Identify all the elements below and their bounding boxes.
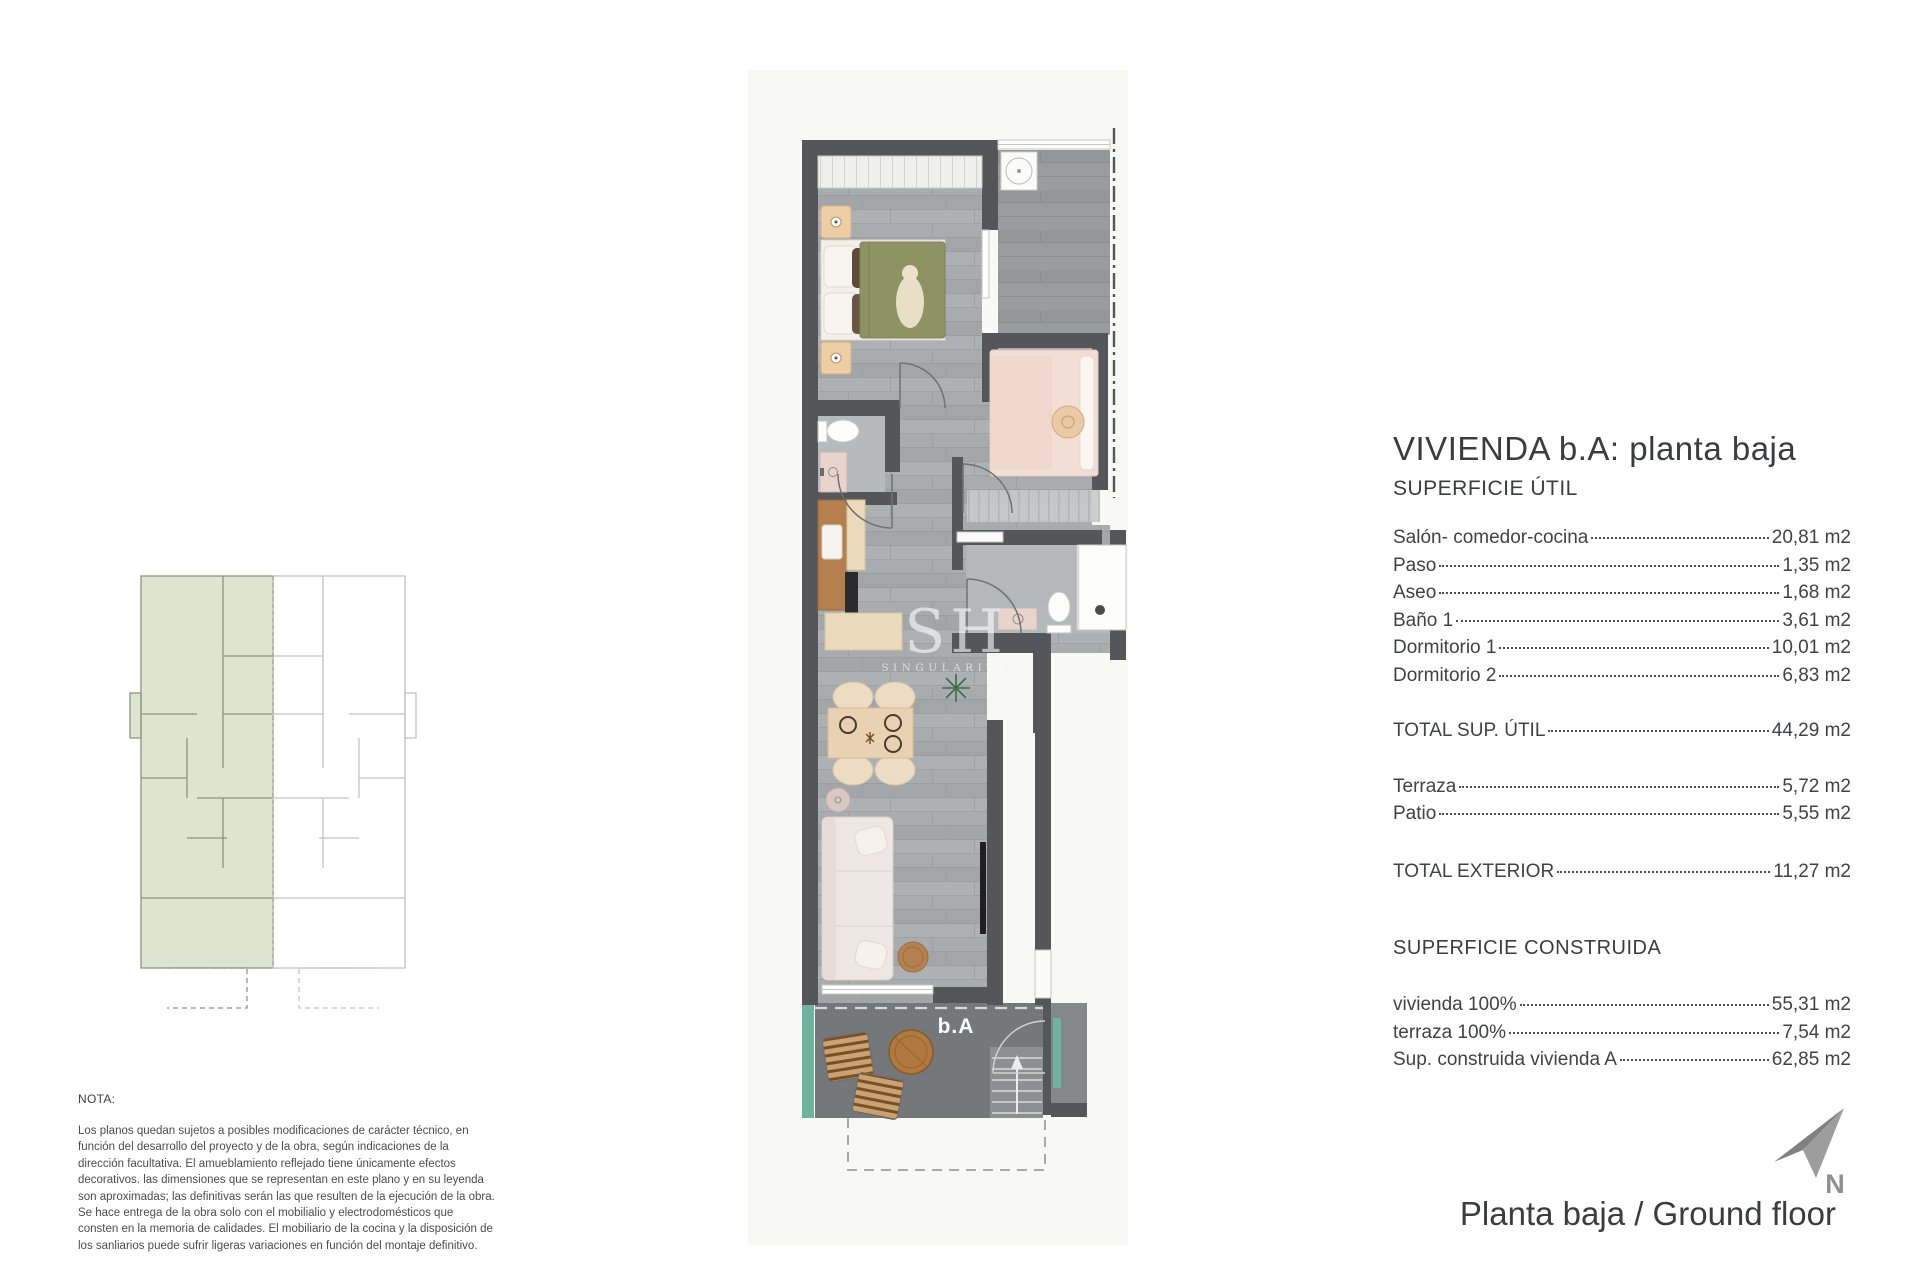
total-util-row: TOTAL SUP. ÚTIL44,29 m2 [1393, 717, 1851, 745]
double-bed [821, 240, 945, 340]
surface-row: Patio5,55 m2 [1393, 800, 1851, 828]
dining-chair [833, 755, 873, 785]
adjacent-unit [273, 576, 405, 968]
cooktop [845, 572, 858, 615]
total-exterior-row: TOTAL EXTERIOR11,27 m2 [1393, 858, 1851, 886]
wardrobe [818, 156, 982, 188]
single-bed [990, 350, 1098, 476]
watermark-monogram: SH [904, 597, 1007, 667]
util-rows: Salón- comedor-cocina20,81 m2 Paso1,35 m… [1393, 524, 1851, 689]
kitchen-sink [822, 525, 842, 559]
highlighted-unit [141, 576, 273, 968]
exterior-rows: Terraza5,72 m2 Patio5,55 m2 [1393, 773, 1851, 828]
rug [967, 490, 1100, 522]
construida-rows: vivienda 100%55,31 m2 terraza 100%7,54 m… [1393, 991, 1851, 1074]
north-label: N [1825, 1169, 1845, 1195]
patio-drain [1001, 152, 1037, 190]
plant [942, 674, 970, 702]
surface-row: Aseo1,68 m2 [1393, 579, 1851, 607]
note-block: NOTA: Los planos quedan sujetos a posibl… [78, 1092, 496, 1254]
surface-row: Dormitorio 110,01 m2 [1393, 634, 1851, 662]
toilet [827, 420, 859, 442]
terrace-chair [852, 1072, 905, 1120]
shower [1078, 545, 1126, 630]
surface-row: vivienda 100%55,31 m2 [1393, 991, 1851, 1019]
tv [980, 842, 986, 934]
surface-row: Salón- comedor-cocina20,81 m2 [1393, 524, 1851, 552]
kitchen-island [825, 613, 902, 650]
washbasin [820, 452, 847, 492]
surface-row: Paso1,35 m2 [1393, 552, 1851, 580]
surface-row: Baño 13,61 m2 [1393, 607, 1851, 635]
north-arrow: N [1756, 1100, 1856, 1195]
surface-row: Sup. construida vivienda A62,85 m2 [1393, 1046, 1851, 1074]
surface-row: Terraza5,72 m2 [1393, 773, 1851, 801]
unit-label: b.A [938, 1015, 975, 1038]
planter-strip [802, 1005, 814, 1118]
sofa [822, 817, 893, 980]
dining-chair [875, 755, 915, 785]
floor-plan: b.A [748, 70, 1128, 1245]
plan-sheet: b.A [0, 0, 1920, 1280]
stairs [990, 1047, 1043, 1118]
planter-strip [1053, 1018, 1061, 1088]
note-heading: NOTA: [78, 1092, 496, 1106]
page-title: VIVIENDA b.A: planta baja [1393, 428, 1851, 470]
side-table [826, 788, 850, 812]
surface-spec: VIVIENDA b.A: planta baja SUPERFICIE ÚTI… [1393, 428, 1851, 1074]
note-body: Los planos quedan sujetos a posibles mod… [78, 1123, 496, 1254]
construida-header: SUPERFICIE CONSTRUIDA [1393, 935, 1851, 961]
util-header: SUPERFICIE ÚTIL [1393, 476, 1851, 502]
surface-row: Dormitorio 26,83 m2 [1393, 662, 1851, 690]
key-plan [127, 568, 420, 1035]
toilet [1048, 592, 1070, 622]
surface-row: terraza 100%7,54 m2 [1393, 1019, 1851, 1047]
sheet-caption: Planta baja / Ground floor [1378, 1195, 1836, 1233]
watermark-wordmark: SINGULARITY H [881, 662, 1030, 674]
